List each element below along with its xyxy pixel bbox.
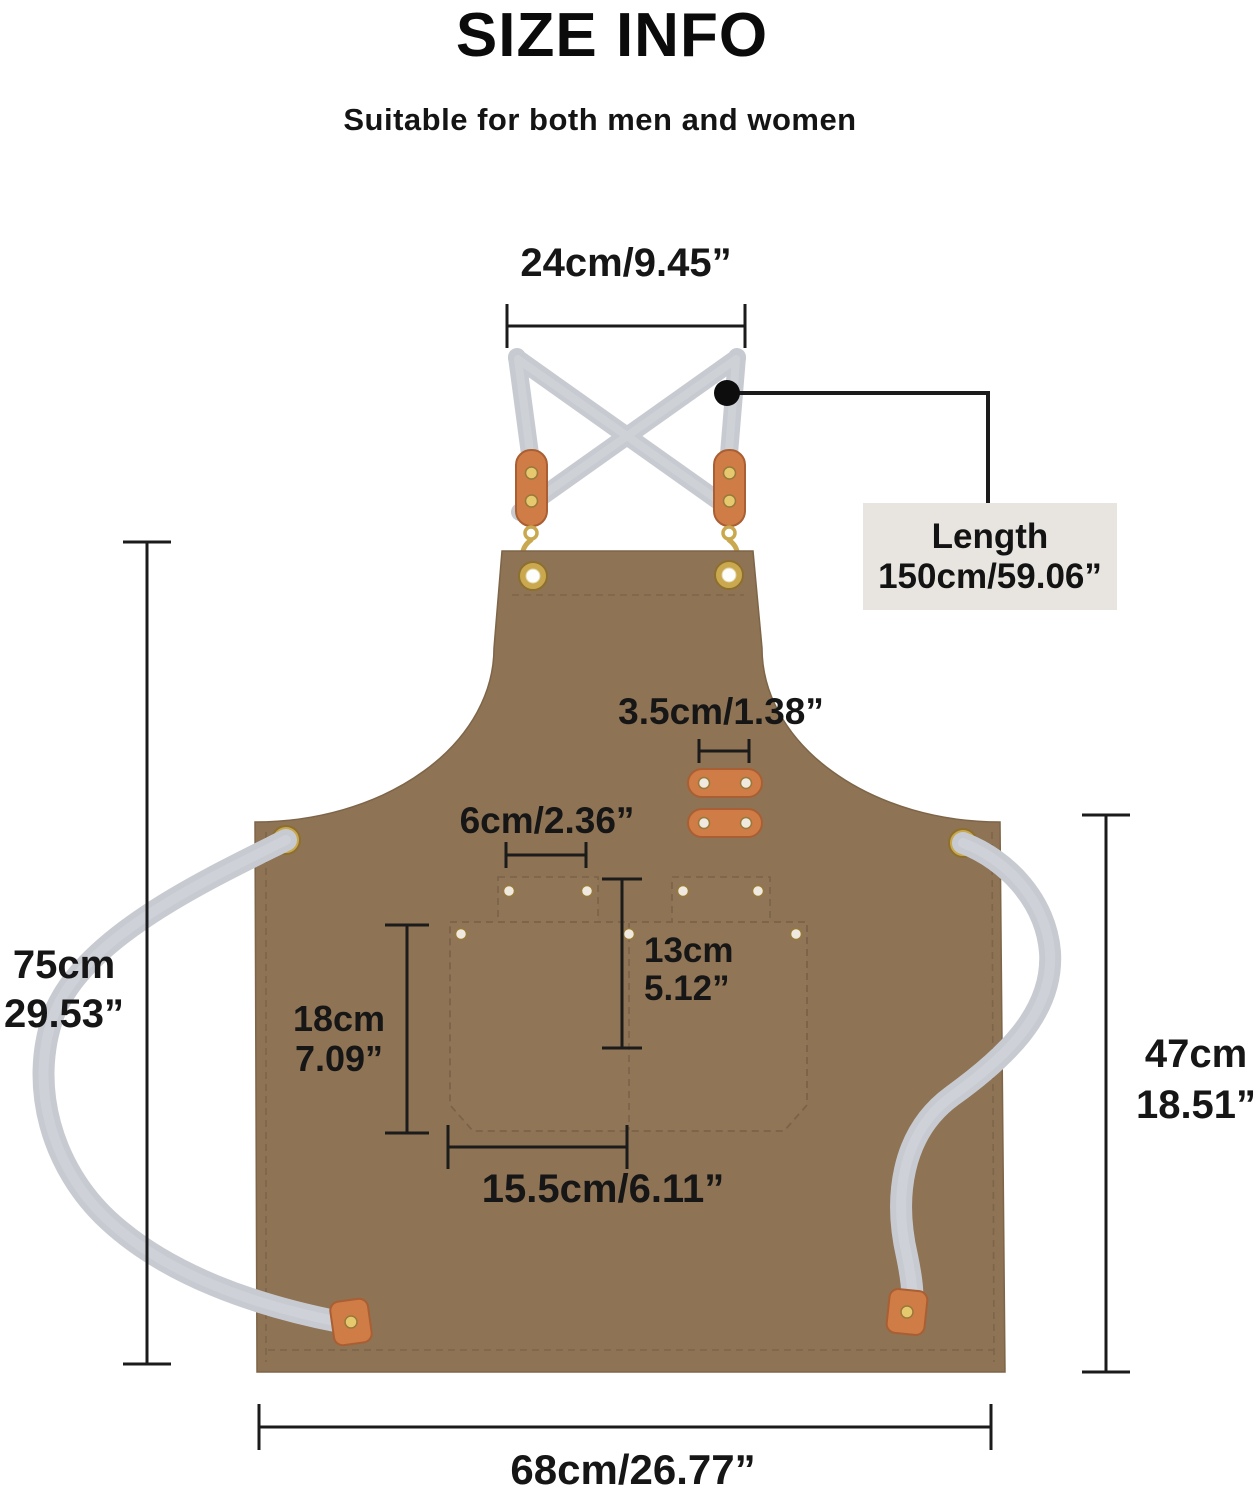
dim-bottom-width [259, 1404, 991, 1450]
dim-neck-width [507, 304, 745, 348]
label-skirt-length: 47cm 18.51” [1136, 1029, 1256, 1131]
dim-skirt-length [1082, 815, 1130, 1372]
label-bottom-width: 68cm/26.77” [510, 1446, 755, 1494]
pocket-flap-left [498, 877, 598, 923]
length-callout-label: Length [932, 517, 1049, 557]
label-small-pocket-width: 6cm/2.36” [460, 800, 635, 843]
length-callout-box: Length 150cm/59.06” [863, 503, 1117, 610]
strap-inner-highlights [518, 359, 736, 510]
label-leather-loop-width: 3.5cm/1.38” [618, 691, 824, 734]
label-pocket-width: 15.5cm/6.11” [482, 1166, 724, 1212]
pocket-flap-right [672, 877, 770, 923]
label-neck-strap-width: 24cm/9.45” [520, 240, 731, 286]
apron-illustration [0, 0, 1260, 1500]
leader-dot [714, 380, 740, 406]
leather-tab-right [714, 450, 745, 526]
length-callout-value: 150cm/59.06” [878, 557, 1102, 597]
length-leader [714, 380, 988, 504]
label-apron-length: 75cm 29.53” [4, 941, 124, 1039]
leather-tab-left [516, 450, 547, 526]
label-pocket-depth: 13cm 5.12” [644, 932, 734, 1008]
size-info-page: SIZE INFO Suitable for both men and wome… [0, 0, 1260, 1500]
label-pocket-height: 18cm 7.09” [293, 999, 385, 1080]
